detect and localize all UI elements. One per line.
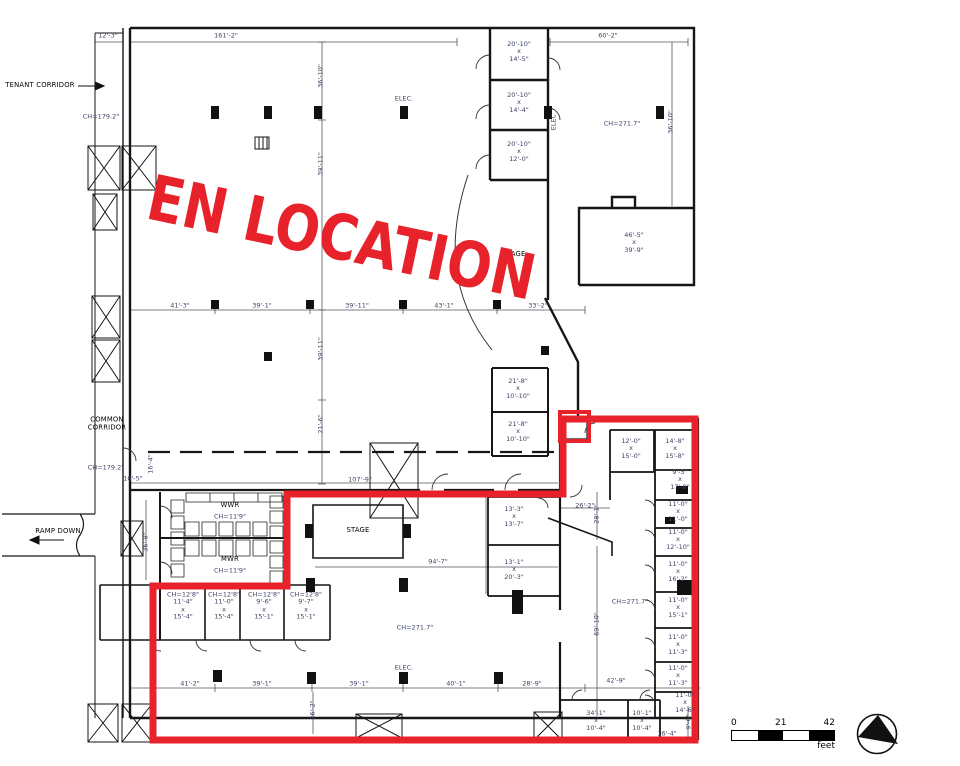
plan-label: CH=271.7"	[604, 120, 640, 127]
scale-segment	[732, 731, 758, 740]
room-label: 11'-0"x16'-2"	[668, 561, 688, 583]
scale-bar-segments	[731, 730, 835, 741]
room-label: 11'-0"x11'-3"	[668, 665, 688, 687]
scale-tick-0: 0	[731, 718, 737, 728]
room-label: 11'-0"x11'-0"	[668, 501, 688, 523]
plan-label: 94'-7"	[428, 558, 448, 565]
room-label: 13'-3"x13'-7"	[504, 506, 524, 528]
plan-label: 21'-6"	[317, 414, 324, 434]
plan-label: 60'-2"	[598, 32, 618, 39]
plan-label: 43'-1"	[434, 302, 454, 309]
stage-label: STAGE	[346, 527, 369, 535]
plan-label: 42'-9"	[606, 677, 626, 684]
highlight-outline	[153, 412, 695, 740]
room-label: CH=12'8"9'-6"x15'-1"	[248, 591, 280, 620]
plan-label: 41'-2"	[180, 680, 200, 687]
plan-label: ELEC.	[395, 664, 413, 671]
room-label: 9'-5"x17'-8"	[670, 469, 690, 491]
floorplan-linework	[0, 0, 960, 766]
plan-label: 39'-1"	[349, 680, 369, 687]
dimension-lines	[95, 38, 700, 738]
plan-label: CH=179.2"	[83, 113, 119, 120]
room-label: 11'-0"x11'-3"	[668, 634, 688, 656]
plan-label: CH=271.7"	[612, 598, 648, 605]
scale-bar: 0 21 42 feet	[731, 718, 835, 754]
room-label: 11'-0"x14'-6"	[675, 692, 695, 714]
plan-label: 16'-4"	[147, 454, 154, 474]
wwr-label: WWR	[221, 502, 240, 510]
plan-label: 9'-6"	[685, 714, 692, 729]
room-label: 21'-8"x10'-10"	[506, 378, 530, 400]
plan-label: CH=271.7"	[397, 624, 433, 631]
plan-label: 39'-11"	[345, 302, 369, 309]
plan-label: 39'-1"	[252, 302, 272, 309]
room-label: 20'-10"x14'-4"	[507, 92, 531, 114]
plan-label: 28'-1"	[593, 504, 600, 524]
plan-label: 69'-10"	[593, 612, 600, 636]
tenant-corridor-label: TENANT CORRIDOR	[5, 82, 74, 90]
scale-tick-42: 42	[824, 718, 835, 728]
plan-label: 36'-10"	[317, 64, 324, 88]
plan-label: 41'-3"	[170, 302, 190, 309]
plan-label: 161'-2"	[214, 32, 238, 39]
mwr-label: MWR	[221, 556, 239, 564]
plan-label: 33'-2"	[528, 302, 548, 309]
north-arrow-icon	[858, 715, 899, 754]
room-label: CH=12'8"11'-0"x15'-4"	[208, 591, 240, 620]
leader-arrows	[30, 82, 104, 544]
plan-label: 26'-2"	[309, 700, 316, 720]
room-label: 14'-8"x15'-8"	[665, 438, 685, 460]
room-label: CH=12'8"11'-4"x15'-4"	[167, 591, 199, 620]
room-label: 20'-10"x14'-5"	[507, 41, 531, 63]
scale-segment	[758, 731, 784, 740]
floorplan-page: TENANT CORRIDOR12'-3"161'-2"60'-2"CH=179…	[0, 0, 960, 766]
scale-tick-21: 21	[775, 718, 786, 728]
plan-label: 36'-8"	[142, 532, 149, 552]
room-label: 12'-0"x15'-0"	[621, 438, 641, 460]
room-label: 20'-10"x12'-0"	[507, 141, 531, 163]
door-swings	[123, 55, 655, 705]
room-label: 10'-1"x10'-4"	[632, 710, 652, 732]
plan-label: 16'-4"	[657, 730, 677, 737]
scale-segment	[809, 731, 835, 740]
plan-label: CH=11'9"	[214, 513, 246, 520]
plan-label: 28'-9"	[522, 680, 542, 687]
plan-label: CH=179.2"	[88, 464, 124, 471]
room-label: 21'-8"x10'-10"	[506, 421, 530, 443]
plan-label: 36'-10"	[667, 110, 674, 134]
plan-label: 107'-9"	[348, 476, 372, 483]
plan-label: 40'-1"	[446, 680, 466, 687]
room-label: 34'-1"x10'-4"	[586, 710, 606, 732]
scale-unit-label: feet	[817, 741, 835, 751]
plan-label: CH=11'9"	[214, 567, 246, 574]
plan-label: 39'-1"	[252, 680, 272, 687]
room-label: 46'-5"x39'-9"	[624, 232, 644, 254]
plan-label: ELEC	[550, 114, 557, 130]
plan-label: 39'-11"	[317, 152, 324, 176]
room-label: 13'-1"x20'-3"	[504, 559, 524, 581]
highlight-polygon	[153, 419, 695, 740]
plan-label: 10'-5"	[123, 475, 143, 482]
room-label: CH=12'8"9'-7"x15'-1"	[290, 591, 322, 620]
scale-segment	[783, 731, 809, 740]
ramp-down-label: RAMP DOWN	[35, 528, 80, 536]
plan-label: ELEC.	[395, 95, 413, 102]
plan-label: 39'-11"	[317, 337, 324, 361]
plan-label: 12'-3"	[98, 32, 118, 39]
room-label: 11'-0"x15'-1"	[668, 597, 688, 619]
common-corridor-label: COMMONCORRIDOR	[88, 416, 126, 431]
room-label: 11'-0"x12'-10"	[666, 529, 690, 551]
